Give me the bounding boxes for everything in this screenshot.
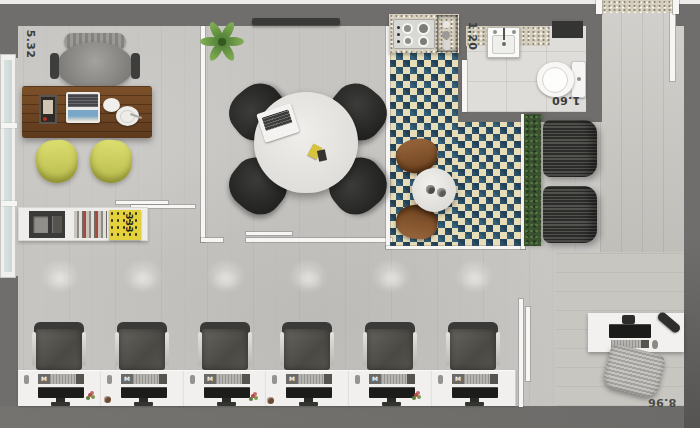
faucet xyxy=(503,28,505,40)
keyboard-keys xyxy=(464,374,490,384)
task-chair xyxy=(115,322,169,372)
monitor xyxy=(452,387,498,398)
workstation: M xyxy=(184,256,267,408)
workstation: M xyxy=(101,256,184,408)
chair-seat xyxy=(36,329,82,370)
wall-bath-right xyxy=(586,10,602,122)
checker-border-bottom xyxy=(386,246,525,249)
lounge-armchair xyxy=(543,186,597,243)
keyboard-numpad xyxy=(76,374,84,384)
laptop xyxy=(66,92,100,123)
faucet-handle xyxy=(493,30,497,34)
monitor xyxy=(121,387,167,398)
chair-armrest xyxy=(198,332,202,366)
keyboard: M xyxy=(452,374,498,384)
floor-ghost xyxy=(371,258,411,294)
bottle xyxy=(444,40,450,50)
bathroom-sink xyxy=(487,27,520,58)
window-mullion xyxy=(1,201,17,206)
kitchen-sink-unit xyxy=(437,15,458,52)
coffee-cup xyxy=(437,188,446,197)
toilet-bowl xyxy=(537,62,574,97)
monitor-base xyxy=(51,402,70,406)
entry-post-right xyxy=(673,0,679,14)
yellow-books: 333 xyxy=(109,210,141,240)
dimension-label-bath-length: 1.60 xyxy=(549,94,583,106)
monitor-base xyxy=(299,402,318,406)
wall-tv xyxy=(252,18,340,25)
photo-frame xyxy=(39,95,57,124)
printer xyxy=(29,211,65,238)
laptop-keyboard xyxy=(68,94,98,107)
desk-phone xyxy=(272,375,277,384)
window-mullion xyxy=(1,123,17,128)
telephone xyxy=(656,311,682,335)
flower-pot xyxy=(414,393,418,397)
reception-desk xyxy=(588,313,684,352)
chair-armrest xyxy=(248,332,252,366)
keyboard-logo: M xyxy=(369,374,381,384)
office-shelf-line-a xyxy=(116,201,168,204)
guest-chair-yellow xyxy=(35,139,79,184)
wall-bottom xyxy=(0,406,700,428)
keyboard-logo: M xyxy=(121,374,133,384)
floor-ghost xyxy=(288,258,328,294)
cooktop-knob xyxy=(397,26,400,29)
executive-desk xyxy=(22,86,152,138)
wall-meeting-bottom-stub xyxy=(201,238,223,242)
desk-phone xyxy=(24,375,29,384)
floor-ghost xyxy=(206,258,246,294)
chair-seat xyxy=(202,329,248,370)
window-glass xyxy=(4,60,12,272)
lounge-armchair xyxy=(543,120,597,177)
keyboard-keys xyxy=(50,374,76,384)
task-chair xyxy=(446,322,500,372)
plant xyxy=(197,18,247,66)
printer-panel xyxy=(52,216,62,233)
toilet-seat xyxy=(542,67,568,93)
burner xyxy=(402,23,413,34)
chair-armrest xyxy=(82,332,86,366)
workstation-desk: M xyxy=(184,370,268,406)
hedge-green-wall xyxy=(524,114,541,246)
workstation-desk: M xyxy=(266,370,350,406)
workstation-desk: M xyxy=(18,370,102,406)
sideboard: 333 xyxy=(18,207,148,241)
chair-armrest xyxy=(446,332,450,366)
chair-armrest xyxy=(330,332,334,366)
task-chair xyxy=(280,322,334,372)
task-chair xyxy=(198,322,252,372)
keyboard-logo: M xyxy=(286,374,298,384)
keyboard-logo: M xyxy=(38,374,50,384)
reception-partition-a xyxy=(519,299,523,407)
red-dot xyxy=(43,117,47,121)
chair-armrest xyxy=(496,332,500,366)
entry-mat xyxy=(602,0,674,13)
bottle xyxy=(442,31,450,39)
desk-phone xyxy=(107,375,112,384)
keyboard-numpad xyxy=(242,374,250,384)
keyboard-keys xyxy=(381,374,407,384)
plant-center xyxy=(218,38,226,46)
monitor xyxy=(369,387,415,398)
office-floor-plan: 333 xyxy=(0,0,700,428)
task-chair xyxy=(32,322,86,372)
keyboard: M xyxy=(38,374,84,384)
chair-seat xyxy=(57,42,133,89)
monitor-base xyxy=(382,402,401,406)
bathroom-door xyxy=(462,60,467,112)
workstation: M xyxy=(18,256,101,408)
monitor xyxy=(609,324,651,338)
desk-phone xyxy=(190,375,195,384)
mug xyxy=(104,396,111,403)
faucet-handle xyxy=(512,30,516,34)
burner xyxy=(417,22,430,35)
task-chair xyxy=(363,322,417,372)
entry-post-left xyxy=(596,0,602,14)
laptop-screen xyxy=(68,110,98,121)
workstation-desk: M xyxy=(101,370,185,406)
workstation-desk: M xyxy=(349,370,433,406)
cooktop xyxy=(393,19,435,49)
monitor xyxy=(204,387,250,398)
kitchen-counter xyxy=(389,14,459,53)
chair-armrest xyxy=(413,332,417,366)
book-stack xyxy=(74,211,107,238)
cooktop-knob xyxy=(397,33,400,36)
chair-seat xyxy=(450,329,496,370)
burner xyxy=(418,36,429,47)
wall-right xyxy=(684,10,700,428)
floor-ghost xyxy=(40,258,80,294)
printer-screen xyxy=(33,216,48,233)
flower-pot xyxy=(251,394,255,398)
dimension-label-bottom: 8.96 xyxy=(645,396,679,408)
desk-phone xyxy=(355,375,360,384)
chair-armrest xyxy=(32,332,36,366)
reception-partition-b xyxy=(526,307,530,381)
chair-armrest xyxy=(115,332,119,366)
monitor-base xyxy=(217,402,236,406)
plate-ring xyxy=(120,110,135,123)
keyboard-keys xyxy=(133,374,159,384)
photo xyxy=(43,100,53,114)
burner xyxy=(403,36,413,46)
entry-door-leaf xyxy=(670,13,675,81)
meeting-table xyxy=(254,92,358,193)
flush-button xyxy=(577,77,581,81)
monitor xyxy=(38,387,84,398)
keyboard-logo: M xyxy=(452,374,464,384)
chair-armrest xyxy=(165,332,169,366)
flower-pot xyxy=(88,393,92,397)
wall-meeting-bottom xyxy=(246,238,392,242)
workstation: M xyxy=(266,256,349,408)
guest-chair-yellow xyxy=(89,139,133,184)
keyboard: M xyxy=(369,374,415,384)
workstation: M xyxy=(432,256,515,408)
keyboard-numpad xyxy=(159,374,167,384)
chair-armrest xyxy=(363,332,367,366)
keyboard: M xyxy=(204,374,250,384)
workstation-desk: M xyxy=(432,370,516,406)
monitor xyxy=(286,387,332,398)
chair-armrest-left xyxy=(50,53,59,79)
window-left xyxy=(0,54,16,278)
laptop-keys xyxy=(262,109,293,131)
desk-phone xyxy=(438,375,443,384)
bathroom-niche xyxy=(552,19,583,38)
mouse xyxy=(652,340,658,349)
keyboard-numpad xyxy=(324,374,332,384)
dining-table xyxy=(412,168,456,212)
keyboard: M xyxy=(121,374,167,384)
keyboard-keys xyxy=(298,374,324,384)
webcam xyxy=(622,315,635,324)
keyboard-logo: M xyxy=(204,374,216,384)
keyboard-numpad xyxy=(407,374,415,384)
meeting-sliding-door xyxy=(246,232,292,235)
keyboard-numpad xyxy=(641,340,649,348)
dimension-label-left: 5.32 xyxy=(24,27,36,61)
book-spine-label: 333 xyxy=(124,214,133,234)
mug xyxy=(267,397,274,404)
floor-ghost xyxy=(123,258,163,294)
keyboard: M xyxy=(286,374,332,384)
wall-meeting-kitchen xyxy=(386,26,390,248)
floor-ghost xyxy=(454,258,494,294)
chair-armrest-right xyxy=(131,53,140,79)
plate-with-spoon xyxy=(116,106,139,126)
keyboard-keys xyxy=(216,374,242,384)
dimension-label-bath-width: 1.20 xyxy=(466,19,478,53)
coffee-cup xyxy=(426,185,435,194)
dining-checkered-floor xyxy=(458,120,521,247)
notebook xyxy=(317,149,327,161)
keyboard-numpad xyxy=(490,374,498,384)
chair-seat xyxy=(119,329,165,370)
chair-seat xyxy=(367,329,413,370)
chair-armrest xyxy=(280,332,284,366)
monitor-base xyxy=(134,402,153,406)
chair-seat xyxy=(284,329,330,370)
wall-top-left-corner xyxy=(0,4,18,58)
cooktop-knob xyxy=(397,40,400,43)
bottle xyxy=(443,21,450,28)
executive-chair xyxy=(50,32,140,90)
workstation: M xyxy=(349,256,432,408)
drain xyxy=(502,42,506,46)
monitor-base xyxy=(465,402,484,406)
